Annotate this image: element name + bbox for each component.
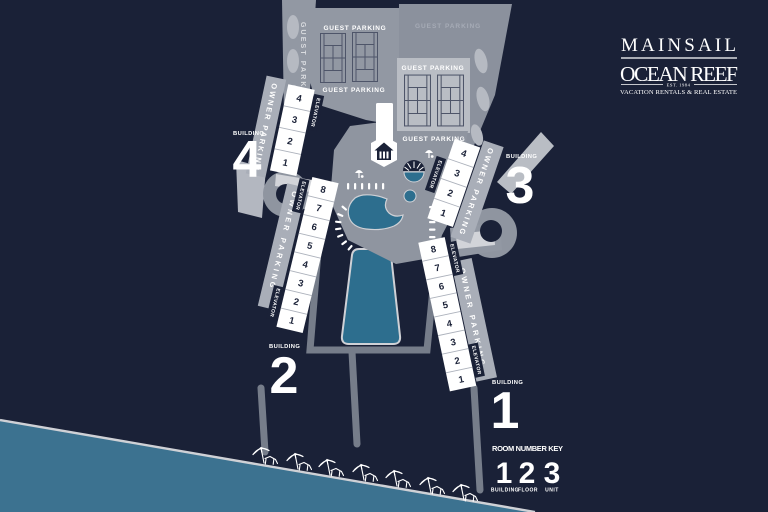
key-label-unit: UNIT: [545, 488, 559, 494]
guest-parking-label: GUEST PARKING: [402, 65, 465, 72]
brand-est: EST. 1984: [667, 82, 691, 87]
building-1-callout: BUILDING 1: [491, 380, 524, 440]
hot-tub: [404, 190, 416, 202]
guest-parking-label: GUEST PARKING: [415, 23, 481, 30]
resort-site-map-page: GUEST PARKING GUEST PARKING GUEST PARKIN…: [0, 0, 768, 512]
building-number: 1: [491, 382, 520, 440]
boardwalk-center: [352, 352, 357, 444]
building-number: 2: [270, 347, 299, 405]
key-digit-floor: 2: [519, 457, 536, 490]
key-digit-building: 1: [496, 457, 513, 490]
room-number-key: ROOM NUMBER KEY 1 2 3 BUILDING FLOOR UNI…: [491, 444, 564, 494]
boardwalk-left: [261, 388, 265, 452]
building-4-callout: BUILDING 4: [233, 131, 265, 189]
site-map: GUEST PARKING GUEST PARKING GUEST PARKIN…: [0, 0, 768, 512]
building-2-callout: BUILDING 2: [269, 344, 301, 405]
key-digit-unit: 3: [544, 457, 561, 490]
building-number: 3: [506, 157, 535, 215]
guest-parking-label: GUEST PARKING: [324, 25, 387, 32]
room-number-key-title: ROOM NUMBER KEY: [492, 444, 564, 453]
key-label-building: BUILDING: [491, 488, 519, 494]
sunburst-cabana: [403, 160, 425, 182]
building-3-callout: BUILDING 3: [506, 154, 538, 215]
guest-parking-label: GUEST PARKING: [323, 87, 386, 94]
building-number: 4: [233, 131, 262, 189]
main-pool: [342, 249, 400, 344]
key-label-floor: FLOOR: [518, 488, 538, 494]
brand-tagline: VACATION RENTALS & REAL ESTATE: [620, 89, 737, 96]
